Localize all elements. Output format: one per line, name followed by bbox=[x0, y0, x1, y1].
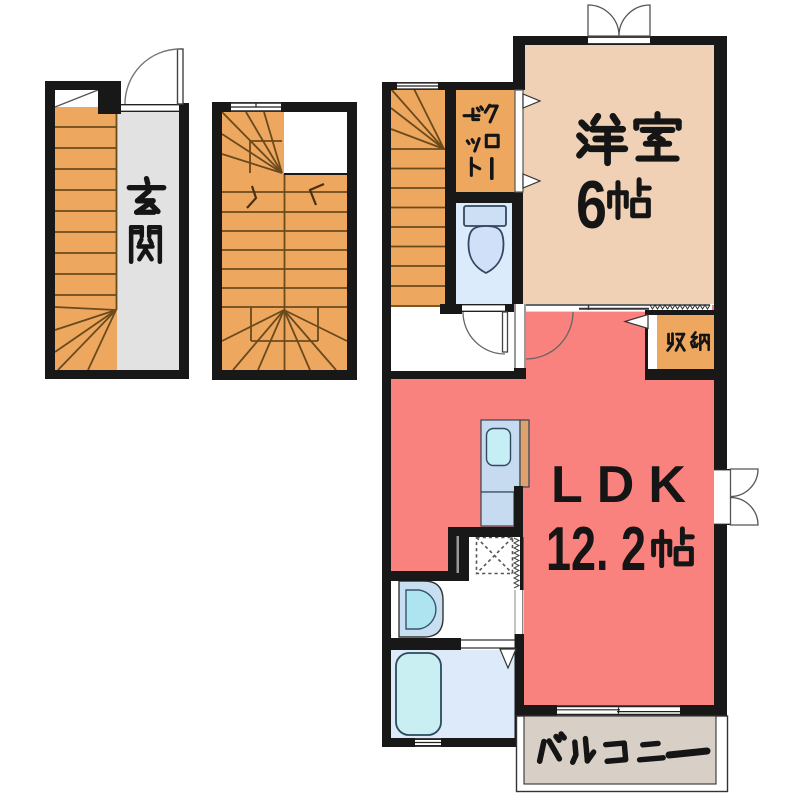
svg-text:LDK: LDK bbox=[551, 456, 700, 514]
svg-text:12. 2: 12. 2 bbox=[546, 515, 646, 584]
svg-text:6: 6 bbox=[576, 168, 607, 243]
